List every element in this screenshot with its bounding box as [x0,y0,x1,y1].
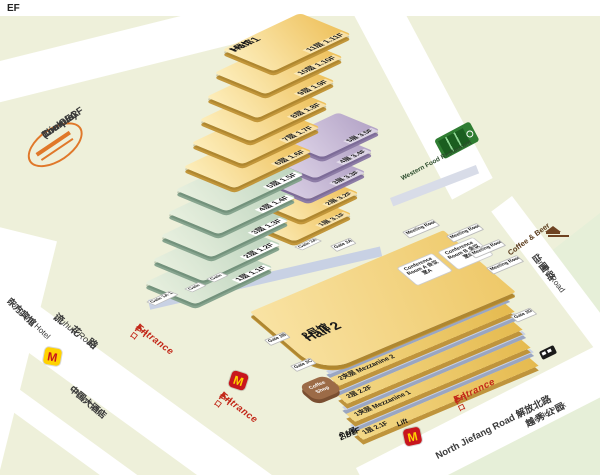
mcdonalds-icon: M [402,426,422,446]
coffee-shop-label: Coffee Shop [304,379,337,397]
hall1-floor-label: 2层 1.2F [240,242,280,260]
mcdonalds-icon: M [228,370,249,391]
bus-icon [539,345,557,360]
hall3-floor-label: 2层 3.2F [322,191,357,207]
hall3-floor-label: 3层 3.3F [329,170,364,186]
mcdonalds-letter: M [406,429,419,445]
mcdonalds-letter: M [232,372,246,388]
meeting-room-4: Meeting Room 4 会议室4 [486,255,524,274]
hall3-floor-label: 1层 3.1F [315,212,350,228]
gate-2a: Gate 2A 2A门 [330,238,357,252]
mcdonalds-icon: M [43,347,63,367]
gate-2d: Gate 2D 2D门 [510,308,537,323]
map-corner-label: EF [7,3,20,14]
hall3-floor-label: 5层 3.5F [343,128,378,144]
hall1-floor-label: 8层 1.8F [287,102,327,120]
hall3-floor-label: 4层 3.4F [336,149,371,165]
hall1-floor-label: 9层 1.9F [294,79,334,97]
gate-2c: Gate 2C 2C门 [290,358,317,372]
mcdonalds-letter: M [46,349,58,365]
venue-map: EF The CECF (Liuhua) Complex Hall 1 1号馆 … [0,0,600,475]
